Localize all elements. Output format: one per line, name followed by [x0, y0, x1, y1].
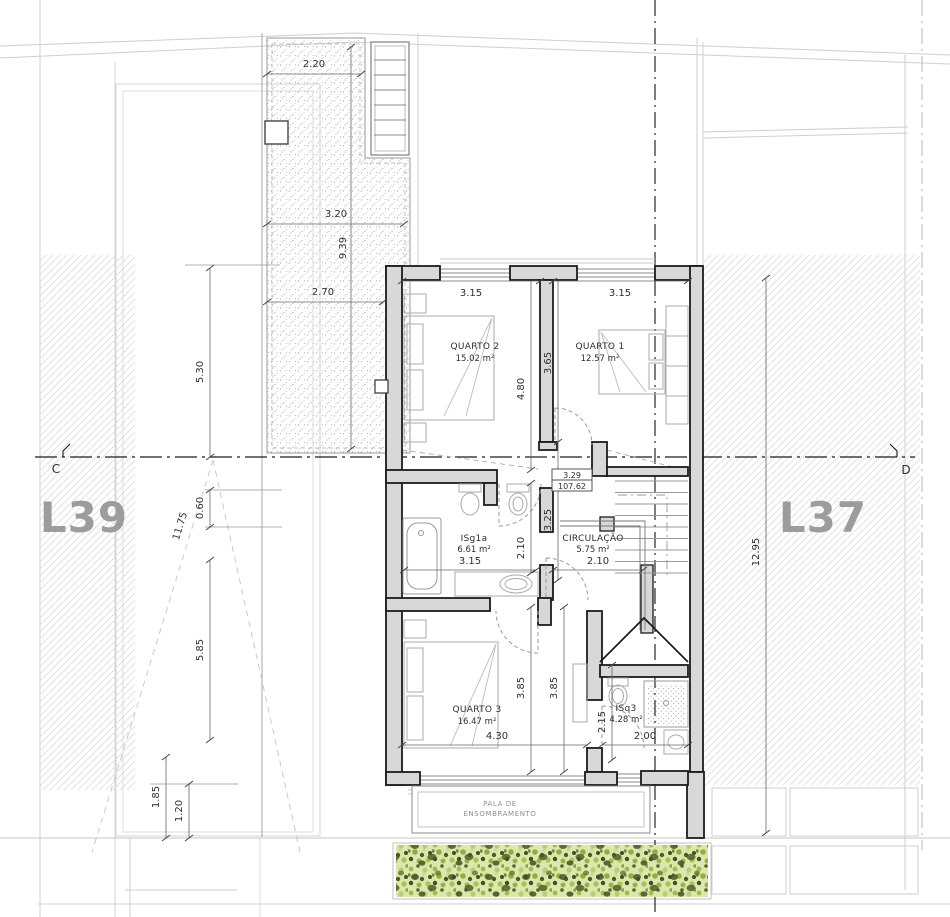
room-isg1a-area: 6.61 m² [457, 545, 490, 555]
wall-segment [538, 598, 551, 625]
level-marker-mid: 3.29 107.62 [552, 469, 592, 491]
wall-segment [690, 266, 703, 772]
lot-label-l37: L37 [779, 493, 867, 542]
room-circulacao-name: CIRCULAÇÃO [562, 533, 623, 544]
dim-quarto2-depth: 4.80 [516, 378, 527, 400]
wall-segment [607, 467, 688, 476]
wall-segment [687, 772, 704, 838]
hedge [396, 845, 708, 897]
dim-terrace-depth: 9.39 [338, 237, 349, 259]
wall-segment [484, 483, 497, 505]
room-quarto2-area: 15.02 m² [456, 354, 495, 364]
exterior-stair [371, 42, 409, 155]
dim-site-left-bottom-b: 1.20 [174, 800, 185, 822]
dim-circulacao-depth: 3.25 [543, 509, 554, 531]
toilet [459, 484, 481, 492]
bathtub [403, 518, 441, 594]
vanity-counter [455, 572, 538, 596]
dim-circulacao-width: 2.10 [587, 556, 609, 567]
wall-segment [585, 772, 617, 785]
dim-site-right-depth: 12.95 [751, 538, 762, 567]
room-quarto1-name: QUARTO 1 [576, 342, 625, 352]
dim-site-left-step: 0.60 [195, 497, 206, 519]
wall-segment [539, 442, 557, 450]
shading-canopy: PALA DE ENSOMBRAMENTO [412, 786, 650, 833]
dim-quarto2-width: 3.15 [460, 288, 482, 299]
canopy-label-line1: PALA DE [483, 800, 517, 808]
dim-quarto3-width: 4.30 [486, 731, 508, 742]
stair-column [600, 517, 614, 531]
wall-segment [386, 470, 497, 483]
dim-quarto3-depth-left: 3.85 [516, 677, 527, 699]
nightstand [404, 620, 426, 638]
door-quarto1 [555, 408, 592, 445]
level-mid-height: 3.29 [563, 471, 581, 480]
wall-segment [386, 598, 490, 611]
canopy-label-line2: ENSOMBRAMENTO [463, 810, 536, 818]
dim-terrace-width-top: 2.20 [303, 59, 325, 70]
wall-segment [587, 748, 602, 772]
dim-terrace-width-mid: 3.20 [325, 209, 347, 220]
wall-segment [386, 772, 420, 785]
section-marker-d: D [901, 463, 910, 477]
door-quarto2 [499, 484, 541, 526]
room-quarto2-name: QUARTO 2 [451, 342, 500, 352]
wall-segment [641, 771, 688, 785]
dim-quarto1-width: 3.15 [609, 288, 631, 299]
bidet [507, 484, 529, 492]
facade-niche [375, 380, 388, 393]
room-quarto3-area: 16.47 m² [458, 717, 497, 727]
dim-isq3-width: 2.00 [634, 731, 656, 742]
room-isq3-area: 4.28 m² [609, 715, 642, 725]
dim-quarto1-depth: 3.65 [543, 352, 554, 374]
wall-segment [587, 611, 602, 700]
room-quarto1-area: 12.57 m² [581, 354, 620, 364]
room-quarto3-name: QUARTO 3 [453, 705, 502, 715]
wall-segment [592, 442, 607, 476]
dim-quarto3-depth-right: 3.85 [549, 677, 560, 699]
level-mid-elevation: 107.62 [558, 482, 586, 491]
closet [666, 306, 688, 424]
room-circulacao-area: 5.75 m² [576, 545, 609, 555]
dim-isg1a-depth: 2.10 [516, 537, 527, 559]
lot-label-l39: L39 [40, 493, 128, 542]
door-quarto3 [496, 611, 538, 653]
wall-segment [386, 266, 402, 785]
bed [404, 316, 494, 420]
room-isq3-name: ISq3 [615, 704, 636, 714]
room-isg1a-name: ISg1a [461, 534, 488, 544]
dim-site-left-lower: 5.85 [195, 639, 206, 661]
dim-terrace-width-low: 2.70 [312, 287, 334, 298]
wall-segment [600, 665, 688, 677]
dim-site-left-bottom-a: 1.85 [151, 786, 162, 808]
dim-isg1a-width: 3.15 [459, 556, 481, 567]
interior-stair [560, 481, 688, 662]
desk [573, 664, 587, 722]
terrace-chimney [265, 121, 288, 144]
floor-plan-drawing: C D L39 L37 [0, 0, 950, 917]
dim-isq3-depth: 2.15 [597, 711, 608, 733]
dim-site-left-diagonal: 11.75 [171, 511, 190, 542]
dim-site-left-upper: 5.30 [195, 361, 206, 383]
wall-segment [641, 565, 653, 633]
section-marker-c: C [52, 462, 60, 476]
